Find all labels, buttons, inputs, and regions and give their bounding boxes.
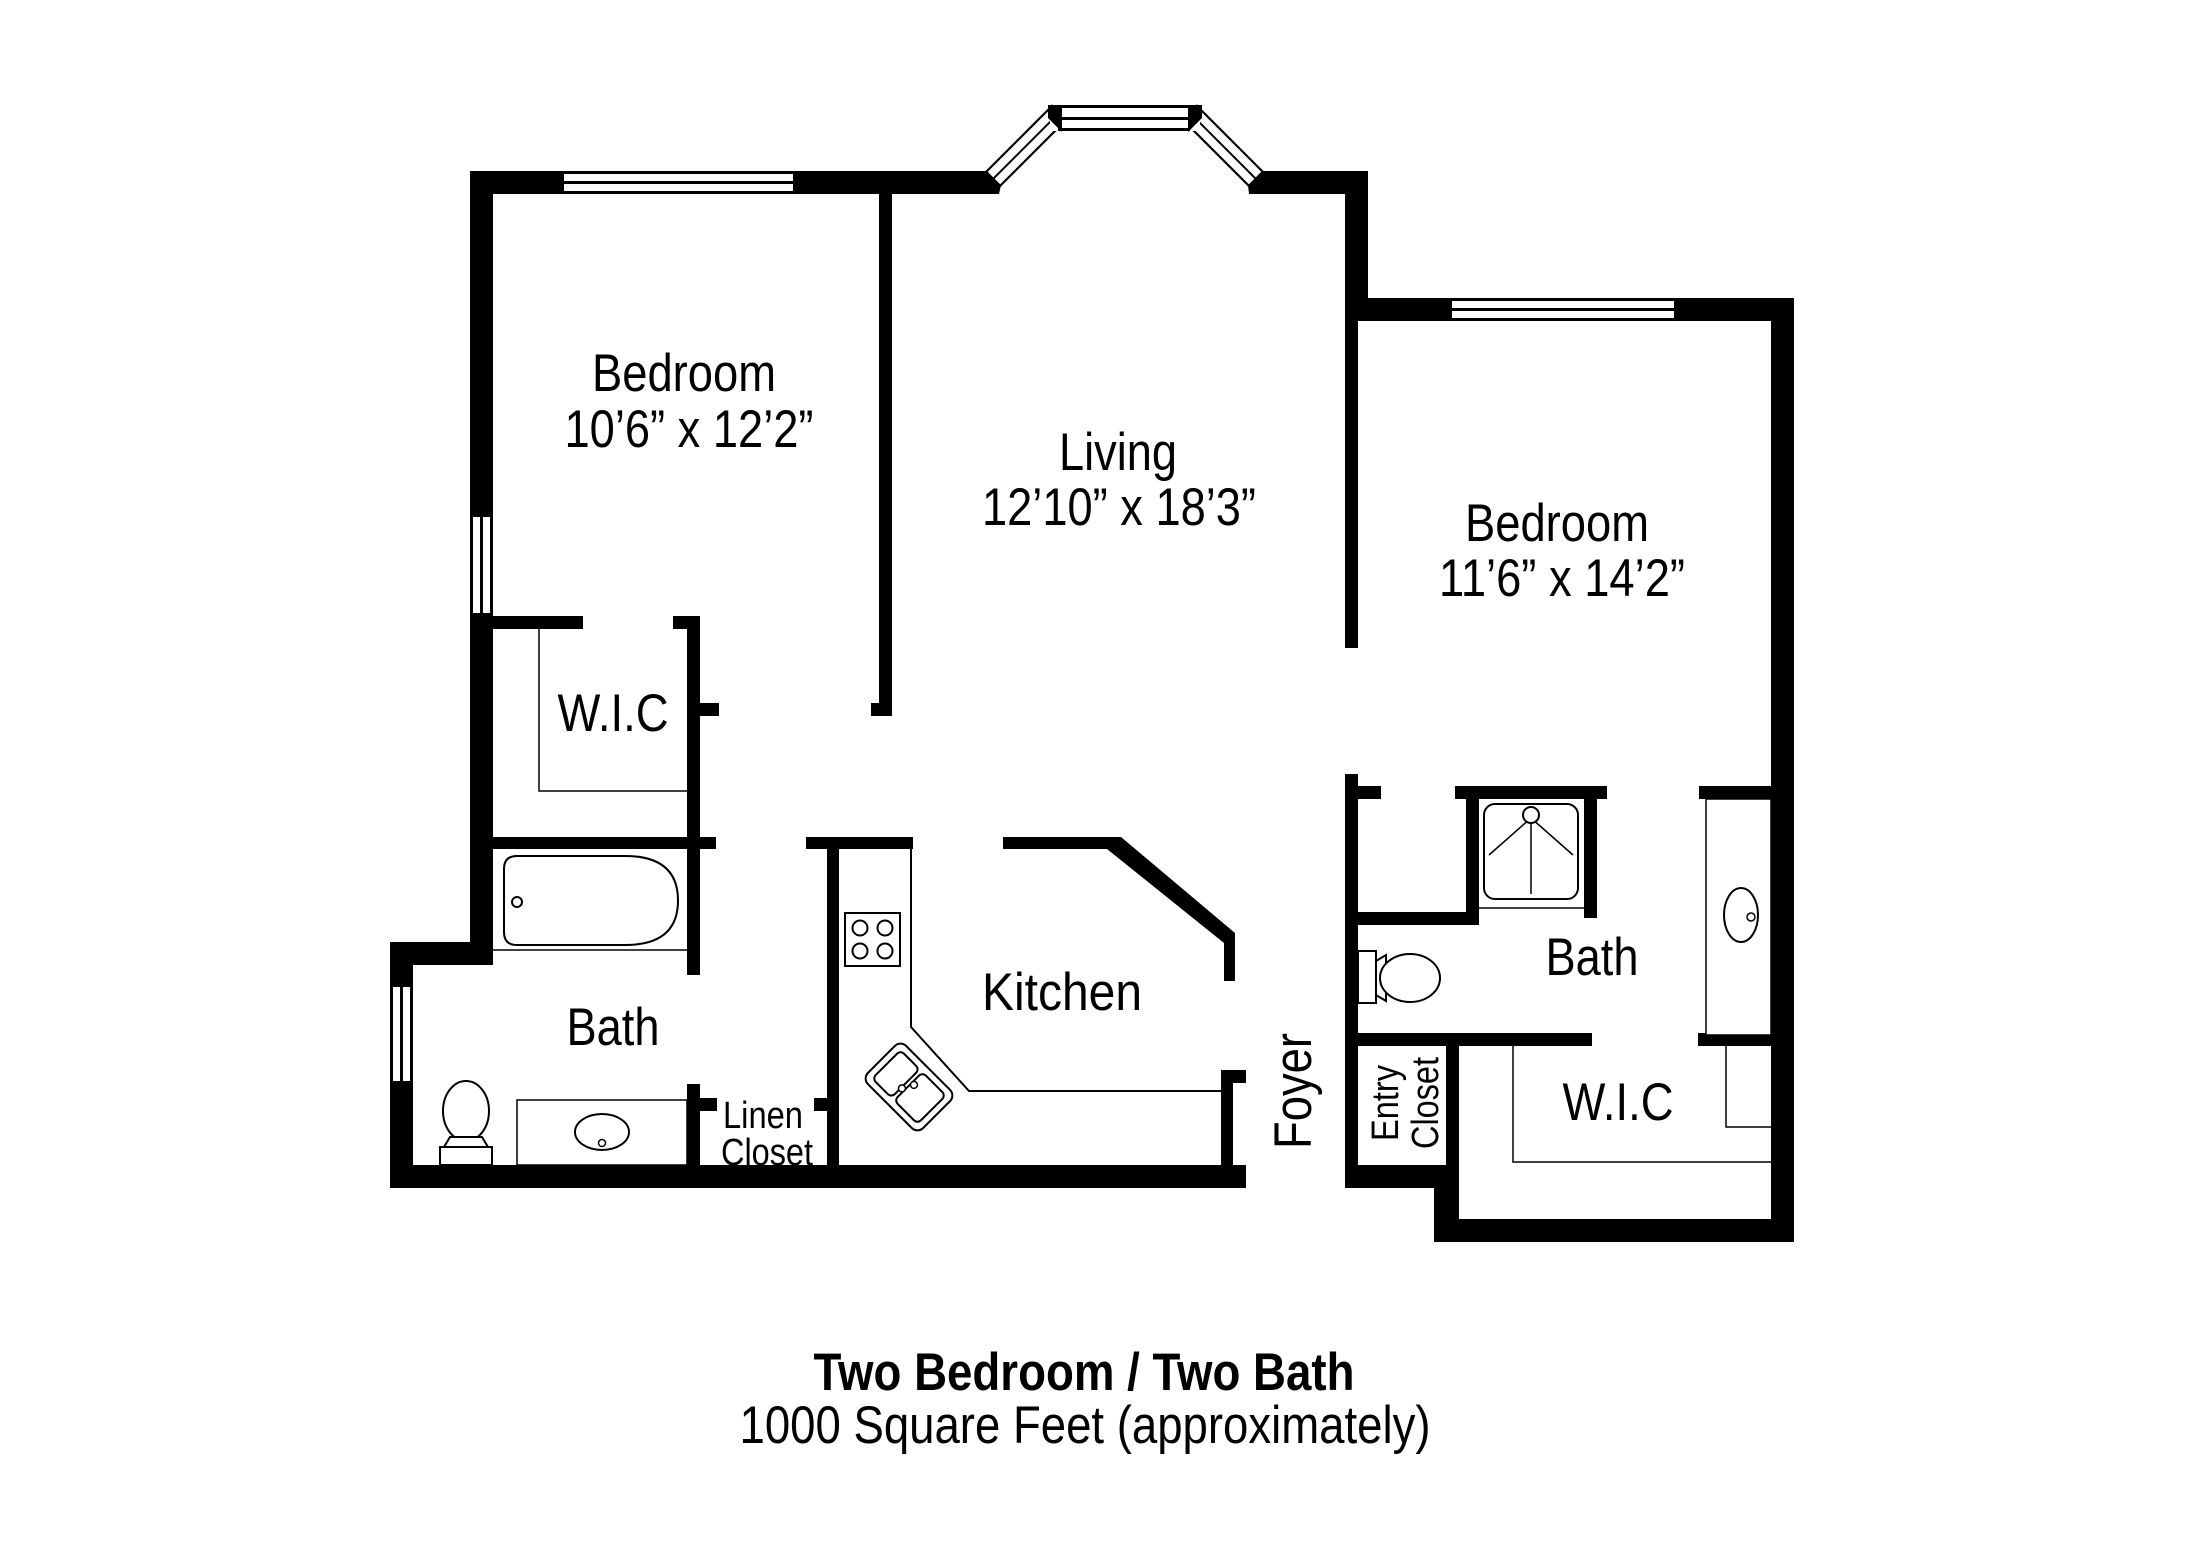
svg-text:Closet: Closet	[1405, 1057, 1447, 1149]
svg-text:Kitchen: Kitchen	[982, 963, 1142, 1022]
svg-text:Bedroom: Bedroom	[592, 344, 776, 403]
svg-text:Entry: Entry	[1365, 1065, 1407, 1141]
svg-text:Bath: Bath	[567, 998, 660, 1057]
svg-text:Bedroom: Bedroom	[1465, 494, 1649, 553]
svg-text:1000 Square Feet (approximatel: 1000 Square Feet (approximately)	[740, 1396, 1431, 1455]
svg-text:W.I.C: W.I.C	[1563, 1073, 1674, 1132]
svg-text:12’10” x 18’3”: 12’10” x 18’3”	[982, 478, 1256, 537]
svg-text:11’6” x 14’2”: 11’6” x 14’2”	[1439, 549, 1685, 608]
svg-text:Closet: Closet	[721, 1132, 813, 1174]
svg-text:Two Bedroom / Two Bath: Two Bedroom / Two Bath	[814, 1343, 1355, 1402]
svg-text:Bath: Bath	[1546, 928, 1639, 987]
svg-text:Linen: Linen	[723, 1095, 803, 1137]
svg-text:W.I.C: W.I.C	[558, 684, 669, 743]
svg-text:10’6” x 12’2”: 10’6” x 12’2”	[565, 400, 814, 459]
svg-text:Living: Living	[1059, 423, 1177, 482]
svg-text:Foyer: Foyer	[1264, 1033, 1323, 1149]
